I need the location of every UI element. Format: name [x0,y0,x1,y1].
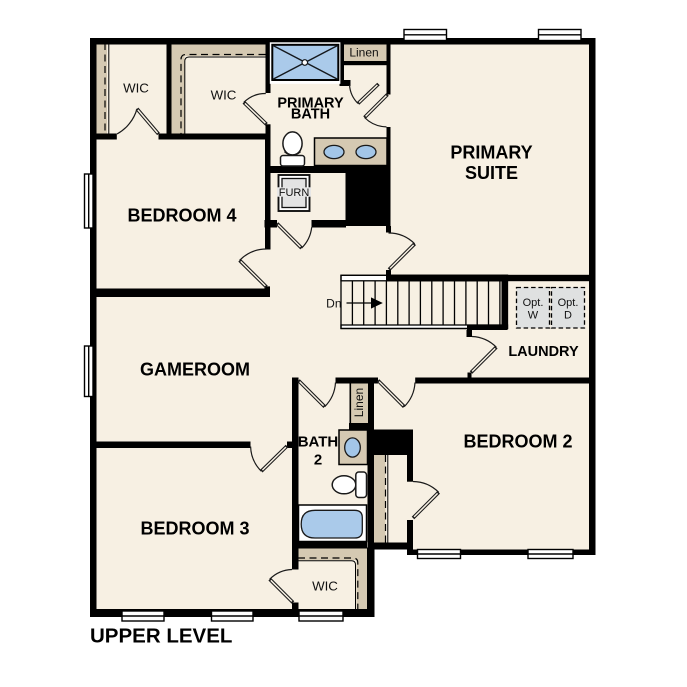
svg-text:BEDROOM 2: BEDROOM 2 [463,431,572,451]
svg-text:D: D [564,310,572,322]
svg-text:BATH: BATH [298,434,339,451]
svg-text:Linen: Linen [349,45,378,59]
svg-text:Linen: Linen [352,388,366,417]
svg-text:BEDROOM 4: BEDROOM 4 [127,206,236,226]
svg-text:SUITE: SUITE [465,163,518,183]
svg-text:FURN: FURN [279,187,310,199]
svg-text:BATH: BATH [291,106,330,122]
svg-text:WIC: WIC [123,80,149,95]
svg-text:Opt.: Opt. [523,297,544,309]
svg-text:PRIMARY: PRIMARY [450,142,532,162]
svg-text:BEDROOM 3: BEDROOM 3 [140,519,249,539]
svg-text:GAMEROOM: GAMEROOM [140,360,250,380]
svg-text:WIC: WIC [211,88,237,103]
svg-text:Dn: Dn [326,297,341,311]
svg-text:UPPER LEVEL: UPPER LEVEL [90,625,232,648]
svg-text:LAUNDRY: LAUNDRY [508,344,579,360]
svg-text:WIC: WIC [312,579,338,594]
svg-text:2: 2 [314,452,322,469]
svg-text:W: W [528,310,539,322]
svg-text:Opt.: Opt. [558,297,579,309]
